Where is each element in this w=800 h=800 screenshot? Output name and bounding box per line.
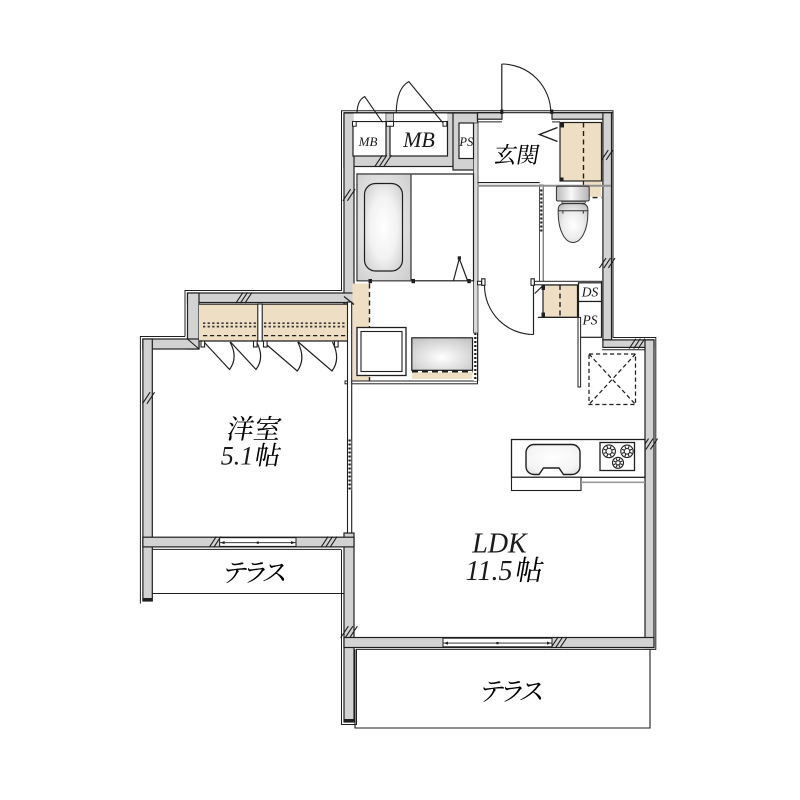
svg-text:5.1: 5.1 xyxy=(221,442,254,471)
svg-text:11.5: 11.5 xyxy=(466,556,513,587)
svg-text:PS: PS xyxy=(582,313,598,328)
svg-text:DS: DS xyxy=(581,285,599,300)
svg-text:PS: PS xyxy=(458,135,474,149)
svg-text:LDK: LDK xyxy=(471,529,528,560)
svg-text:MB: MB xyxy=(358,134,378,149)
svg-text:MB: MB xyxy=(402,127,435,152)
